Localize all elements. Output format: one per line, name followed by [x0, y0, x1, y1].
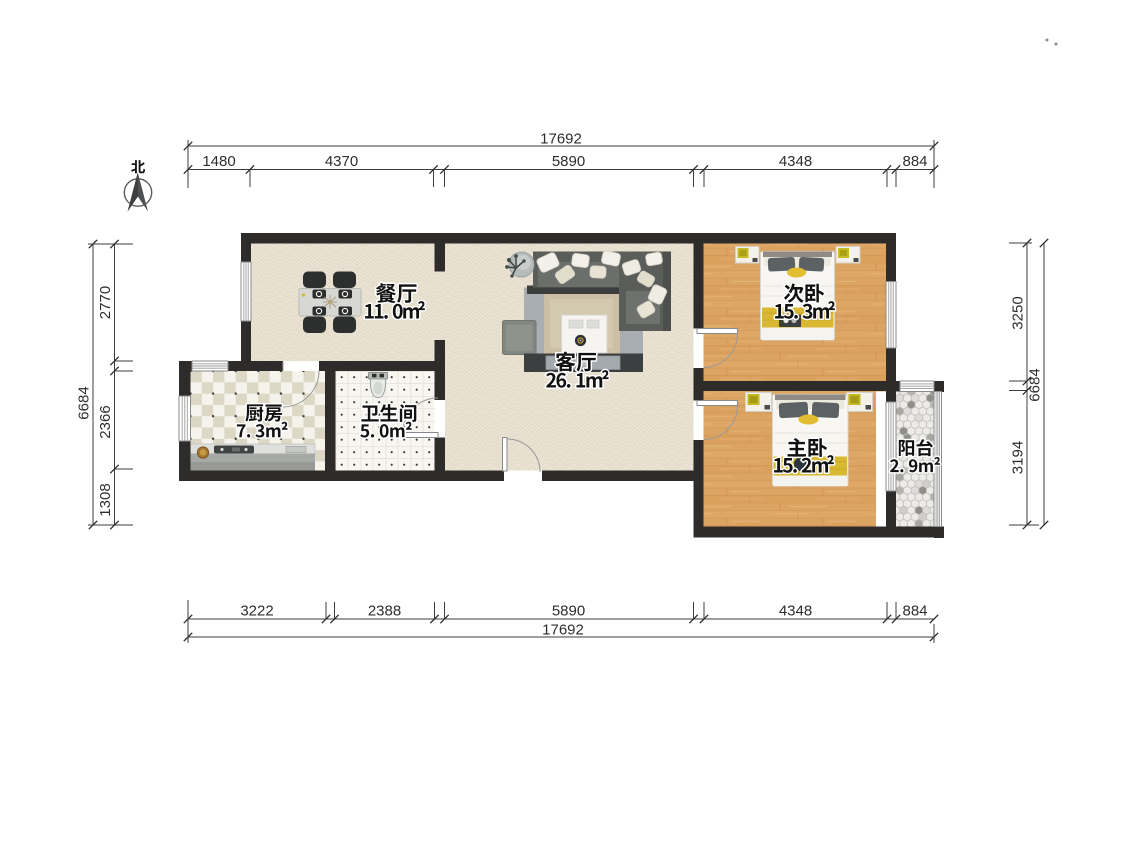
- svg-text:4348: 4348: [779, 153, 812, 170]
- svg-text:4370: 4370: [325, 153, 358, 170]
- svg-text:2770: 2770: [97, 286, 114, 319]
- svg-text:3250: 3250: [1010, 296, 1027, 329]
- svg-text:1308: 1308: [97, 483, 114, 516]
- svg-text:2388: 2388: [368, 603, 401, 620]
- svg-text:3222: 3222: [240, 603, 273, 620]
- svg-text:884: 884: [902, 603, 927, 620]
- svg-text:6684: 6684: [76, 386, 93, 419]
- svg-text:6684: 6684: [1027, 368, 1044, 401]
- svg-text:17692: 17692: [542, 622, 584, 639]
- svg-text:17692: 17692: [540, 131, 582, 148]
- svg-text:5890: 5890: [552, 153, 585, 170]
- svg-text:1480: 1480: [202, 153, 235, 170]
- svg-text:5890: 5890: [552, 603, 585, 620]
- svg-text:4348: 4348: [779, 603, 812, 620]
- svg-text:3194: 3194: [1010, 441, 1027, 474]
- svg-text:884: 884: [902, 153, 927, 170]
- svg-text:2366: 2366: [97, 405, 114, 438]
